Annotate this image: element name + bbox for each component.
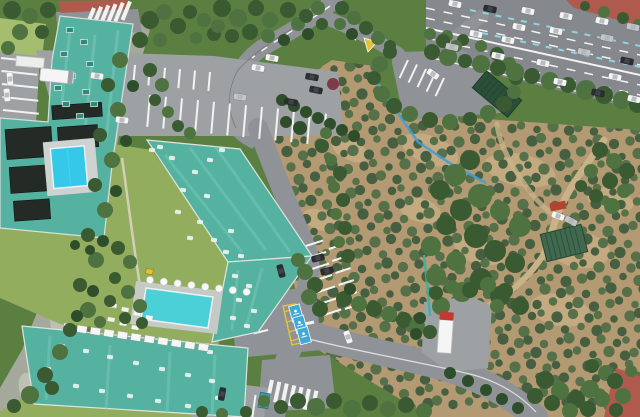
rooftop-unit [90,101,97,106]
orchard-tree [356,88,367,99]
pool-umbrella [188,282,195,289]
yellow-cart [146,269,154,275]
orchard-tree [556,337,564,345]
orchard-tree [579,210,589,220]
tree [348,130,360,142]
orchard-tree [407,226,417,236]
cabana [117,331,128,339]
tree [497,283,513,299]
tree [524,68,540,84]
orchard-tree [517,121,526,130]
tree [104,152,120,168]
orchard-tree [388,187,397,196]
pool-umbrella [160,278,167,285]
tree [480,384,492,396]
tree [111,241,125,255]
cabana [157,337,168,345]
orchard-tree [319,164,327,172]
tree [110,102,126,118]
tree [121,285,135,299]
tree [480,105,496,121]
orchard-tree [509,361,520,372]
orchard-tree [317,211,326,220]
orchard-tree [555,161,565,171]
orchard-tree [441,388,449,396]
orchard-tree [366,102,375,111]
car [3,88,11,102]
tree [81,228,95,242]
tree [87,285,99,297]
tree [197,13,211,27]
orchard-tree [482,211,490,219]
roof-vent [175,210,181,215]
roof-vent [223,250,229,255]
orchard-tree [572,297,583,308]
orchard-tree [617,327,626,336]
orchard-tree [586,271,595,280]
tree [312,112,324,124]
roof-vent [157,145,163,150]
orchard-tree [442,235,453,246]
cabana [90,327,101,335]
tree [464,224,488,248]
tree [421,236,441,256]
tree [512,402,524,414]
orchard-tree [626,263,635,272]
orchard-tree [584,313,593,322]
orchard-tree [366,173,377,184]
orchard-tree [349,321,358,330]
orchard-tree [629,348,638,357]
orchard-tree [359,161,368,170]
roof-vent [204,194,210,199]
cabana [198,343,209,351]
pool-umbrella [202,283,209,290]
tree [7,399,21,413]
orchard-tree [465,397,474,406]
tree [446,251,466,271]
orchard-tree [523,352,531,360]
tree [496,96,512,112]
tree [585,359,599,373]
orchard-tree [410,283,420,293]
orchard-tree [391,271,400,280]
orchard-tree [588,224,596,232]
orchard-tree [565,302,573,310]
orchard-tree [415,386,424,395]
tree [414,312,426,324]
orchard-tree [601,322,611,332]
tree [462,375,474,387]
orchard-tree [497,263,506,272]
orchard-tree [539,213,548,222]
orchard-tree [340,150,348,158]
tree [442,114,458,130]
tree [422,112,438,128]
roof-vent [155,399,161,404]
orchard-tree [298,150,308,160]
orchard-tree [486,138,495,147]
roof-vent [187,236,193,241]
orchard-tree [421,200,430,209]
orchard-tree [369,159,378,168]
orchard-tree [603,275,612,284]
orchard-tree [425,160,434,169]
tree [336,193,350,207]
orchard-tree [411,186,422,197]
orchard-tree [322,199,332,209]
cabana [144,335,155,343]
orchard-tree [524,161,532,169]
tree [261,29,275,43]
tree [88,178,102,192]
orchard-tree [369,236,380,247]
tree [149,94,161,106]
orchard-tree [495,326,504,335]
roof-vent [209,379,215,384]
orchard-tree [346,237,355,246]
orchard-tree [409,172,418,181]
tree [301,289,317,305]
tree [444,164,466,186]
tree [544,395,560,411]
orchard-tree [507,347,516,356]
orchard-tree [523,335,532,344]
orchard-tree [528,312,537,321]
orchard-tree [577,273,587,283]
orchard-tree [355,234,363,242]
rooftop-unit [66,27,73,32]
orchard-tree [593,261,604,272]
orchard-tree [370,286,379,295]
roof-vent [127,394,133,399]
orchard-tree [358,265,367,274]
tree [436,215,456,235]
tree [490,60,506,76]
orchard-tree [543,189,551,197]
pool-umbrella [174,280,181,287]
orchard-tree [620,350,630,360]
orchard-tree [498,159,507,168]
rooftop-unit [60,51,67,56]
tree [242,24,258,40]
orchard-tree [561,325,570,334]
tree [300,106,312,118]
orchard-tree [495,359,503,367]
tree [312,301,328,317]
car [6,72,14,86]
orchard-tree [400,215,409,224]
orchard-tree [605,282,616,293]
orchard-tree [412,236,421,245]
tree [480,277,496,293]
orchard-tree [536,133,546,143]
tree [336,124,348,136]
roof-vent [228,229,234,234]
roof-vent [230,316,236,321]
orchard-tree [439,134,447,142]
tree [424,44,440,60]
tree [619,163,635,179]
roof-vent [185,373,191,378]
tree [359,21,373,35]
tree [496,393,508,405]
tree [381,306,397,322]
orchard-tree [397,184,405,192]
orchard-tree [494,183,504,193]
tree [290,393,306,409]
tree [12,24,28,40]
orchard-tree [546,274,554,282]
orchard-tree [610,315,618,323]
tree [334,18,346,30]
orchard-tree [360,288,369,297]
tree [248,0,264,16]
tree [374,86,390,102]
tree [598,6,610,18]
orchard-tree [446,146,455,155]
tree [617,184,631,198]
orchard-tree [410,299,419,308]
orchard-tree [605,299,614,308]
orchard-tree [342,86,350,94]
orchard-tree [613,339,622,348]
orchard-tree [609,188,617,196]
orchard-tree [474,122,485,133]
orchard-tree [383,227,391,235]
tree [291,253,305,267]
tree [423,325,437,339]
tree [606,153,622,169]
tree [372,56,388,72]
orchard-tree [619,223,629,233]
tree [463,112,477,126]
tree [109,272,121,284]
tree [580,401,596,417]
tree [307,398,325,416]
tree [37,367,53,383]
orchard-tree [404,196,413,205]
orchard-tree [551,311,562,322]
orchard-tree [371,189,380,198]
bus-canopy [16,56,45,68]
orchard-tree [310,228,318,236]
orchard-tree [339,307,350,318]
roof-vent [211,238,217,243]
orchard-tree [378,123,387,132]
rooftop-unit [80,39,87,44]
tree [444,367,456,379]
orchard-tree [568,309,578,319]
tree [326,393,342,409]
roof-vent [149,148,155,153]
orchard-tree [519,152,528,161]
roof-vent [238,254,244,259]
orchard-tree [610,259,620,269]
orchard-tree [394,128,402,136]
tree [229,9,247,27]
tree [330,208,342,220]
tree [462,282,478,298]
orchard-tree [349,98,358,107]
tree [325,154,337,166]
orchard-tree [489,223,498,232]
roof-vent [83,349,89,354]
orchard-tree [598,238,608,248]
orchard-tree [491,176,499,184]
orchard-tree [514,338,524,348]
orchard-tree [365,276,375,286]
orchard-tree [579,259,587,267]
tree [430,180,450,200]
tree [97,235,109,247]
tree [101,78,115,92]
tree [460,150,480,170]
tree [45,381,59,395]
tree [602,173,618,189]
tree [367,71,381,85]
orchard-tree [381,274,390,283]
roof-vent [219,148,225,153]
tree [63,323,77,337]
tree [127,80,139,92]
orchard-tree [467,127,475,135]
orchard-tree [400,285,411,296]
orchard-tree [401,335,410,344]
tree [472,55,490,73]
orchard-tree [397,151,406,160]
orchard-tree [564,158,573,167]
orchard-tree [530,347,541,358]
roof-vent [207,158,213,163]
orchard-tree [332,312,340,320]
orchard-tree [538,163,549,174]
tree [490,201,510,221]
tree [73,278,87,292]
orchard-tree [402,238,411,247]
tree [94,316,106,328]
orchard-tree [473,214,482,223]
orchard-tree [361,114,369,122]
orchard-tree [597,160,605,168]
orchard-tree [407,276,415,284]
orchard-tree [356,312,366,322]
aerial-photo [0,0,640,417]
orchard-tree [585,139,593,147]
tree [299,9,313,23]
tree [347,11,361,25]
orchard-tree [461,247,469,255]
cabana [130,333,141,341]
orchard-tree [511,314,520,323]
orchard-tree [406,149,414,157]
cabana [184,341,195,349]
orchard-tree [367,222,376,231]
tree [143,63,157,77]
tree [371,31,385,45]
tree [172,120,184,132]
orchard-tree [376,170,386,180]
orchard-tree [573,346,582,355]
orchard-tree [355,185,365,195]
tree [93,128,107,142]
orchard-tree [425,384,434,393]
tree [362,395,378,411]
orchard-tree [395,248,403,256]
orchard-tree [481,402,489,410]
orchard-tree [544,321,553,330]
tree [328,181,340,193]
tree [536,371,554,389]
car [115,116,129,124]
orchard-tree [396,375,404,383]
tree [592,142,608,158]
tree [211,19,225,33]
orchard-tree [448,400,457,409]
tree [184,127,196,139]
truck [437,312,454,354]
tree [575,180,587,192]
roof-vent [236,298,242,303]
pool-umbrella [215,285,222,292]
tree [262,12,278,28]
tree [110,185,122,197]
tree [429,286,443,300]
orchard-tree [365,326,373,334]
orchard-tree [537,276,546,285]
orchard-tree [532,300,541,309]
orchard-tree [379,321,390,332]
orchard-tree [563,349,572,358]
orchard-tree [525,239,535,249]
orchard-tree [385,163,393,171]
tree [509,215,531,237]
tree [22,8,38,24]
orchard-tree [625,136,634,145]
orchard-tree [594,311,603,320]
tree [346,28,358,40]
tree [410,328,422,340]
tree [71,310,83,322]
orchard-tree [386,234,396,244]
roof-vent [192,170,198,175]
orchard-tree [591,247,600,256]
tree [450,199,472,221]
orchard-tree [531,173,540,182]
orchard-tree [607,235,616,244]
orchard-tree [539,283,550,294]
orchard-tree [373,135,381,143]
pool-umbrella [243,288,250,295]
tree [133,299,147,313]
orchard-tree [609,139,619,149]
tree [625,365,637,377]
orchard-tree [576,203,584,211]
tree [604,198,620,214]
orchard-tree [565,285,574,294]
orchard-tree [582,290,591,299]
orchard-tree [595,214,604,223]
tree [609,403,623,417]
tree [320,127,332,139]
orchard-tree [607,252,615,260]
orchard-tree [507,124,516,133]
orchard-tree [324,223,335,234]
tree [445,280,459,294]
orchard-tree [547,351,557,361]
scene-svg [0,0,640,417]
tree [506,63,524,81]
